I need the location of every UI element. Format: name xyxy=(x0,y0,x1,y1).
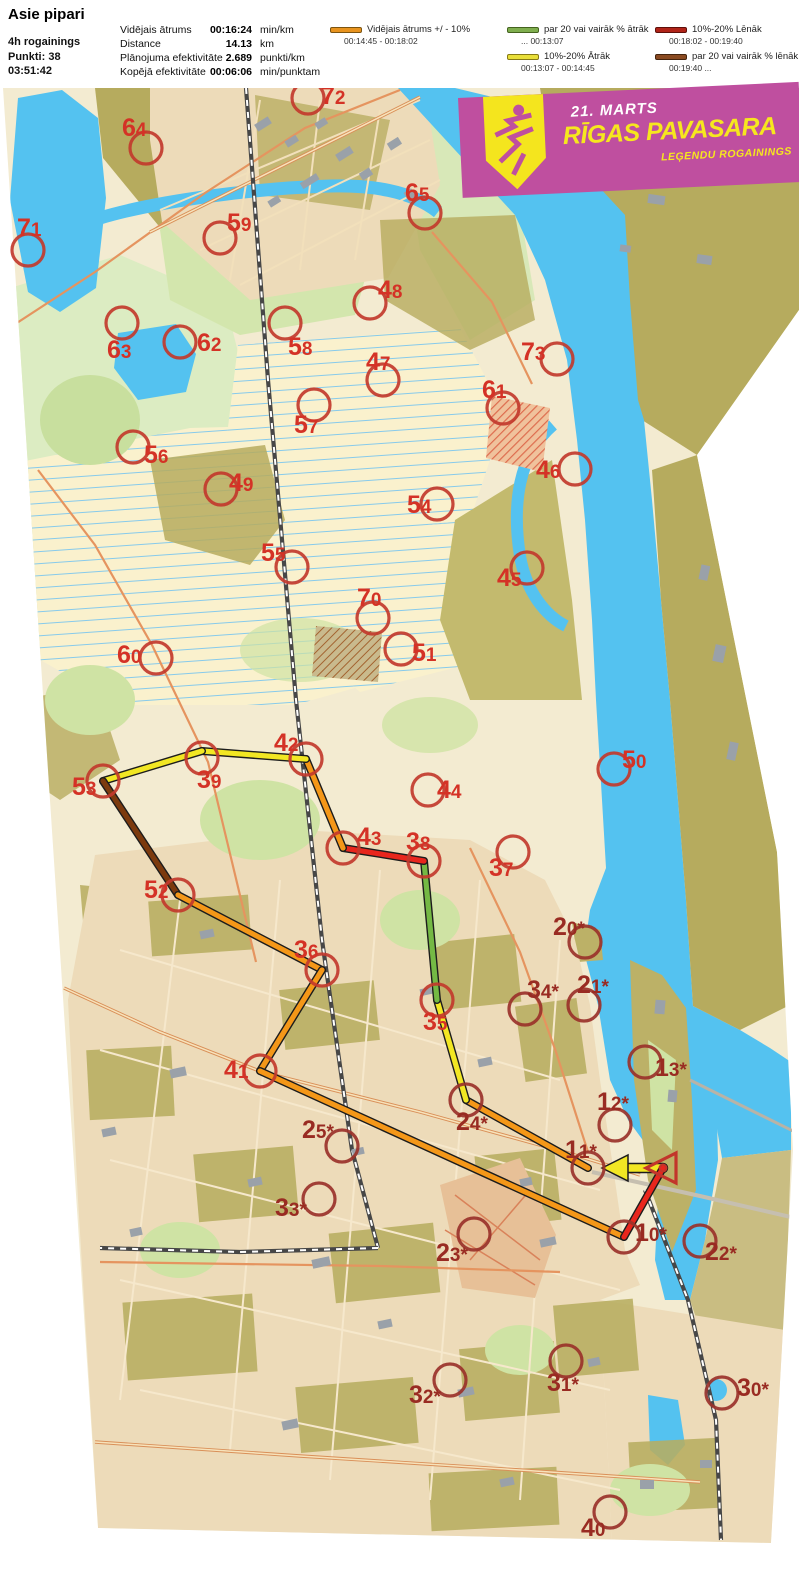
stat-value: 2.689 xyxy=(180,52,252,64)
legend-item-slower: 10%-20% Lēnāk 00:18:02 - 00:19:40 xyxy=(655,24,762,50)
stat-value: 00:06:06 xyxy=(180,66,252,78)
legend-swatch-orange xyxy=(330,27,362,33)
stat-value: 14.13 xyxy=(180,38,252,50)
event-subtitle: LEĢENDU ROGAININGS xyxy=(661,145,792,163)
legend-item-slowest: par 20 vai vairāk % lēnāk 00:19:40 ... xyxy=(655,51,798,77)
stat-value: 00:16:24 xyxy=(180,24,252,36)
total-time: 03:51:42 xyxy=(8,65,52,77)
legend-swatch-red xyxy=(655,27,687,33)
legend-swatch-brown xyxy=(655,54,687,60)
stat-unit: punkti/km xyxy=(260,52,305,64)
legend-item-faster: 10%-20% Ātrāk 00:13:07 - 00:14:45 xyxy=(507,51,610,77)
stat-unit: min/km xyxy=(260,24,294,36)
map-canvas: 7264657159486362584773615756494654554570… xyxy=(0,0,799,1590)
stat-unit: min/punktam xyxy=(260,66,320,78)
event-format: 4h rogainings xyxy=(8,36,80,48)
legend-swatch-yellow xyxy=(507,54,539,60)
results-header: Asie pipari 4h rogainings Punkti: 38 03:… xyxy=(0,0,799,88)
rogaining-result-page: 7264657159486362584773615756494654554570… xyxy=(0,0,799,1590)
legend-item-fastest: par 20 vai vairāk % ātrāk ... 00:13:07 xyxy=(507,24,649,50)
map-terrain xyxy=(0,88,799,1590)
stat-label: Distance xyxy=(120,38,161,50)
stat-unit: km xyxy=(260,38,274,50)
runner-logo-icon xyxy=(482,94,549,195)
event-banner: 21. MARTS RĪGAS PAVASARA LEĢENDU ROGAINI… xyxy=(458,82,799,198)
legend-swatch-green xyxy=(507,27,539,33)
points-total: Punkti: 38 xyxy=(8,51,61,63)
team-name: Asie pipari xyxy=(8,6,85,23)
legend-item-average: Vidējais ātrums +/ - 10% 00:14:45 - 00:1… xyxy=(330,24,470,50)
